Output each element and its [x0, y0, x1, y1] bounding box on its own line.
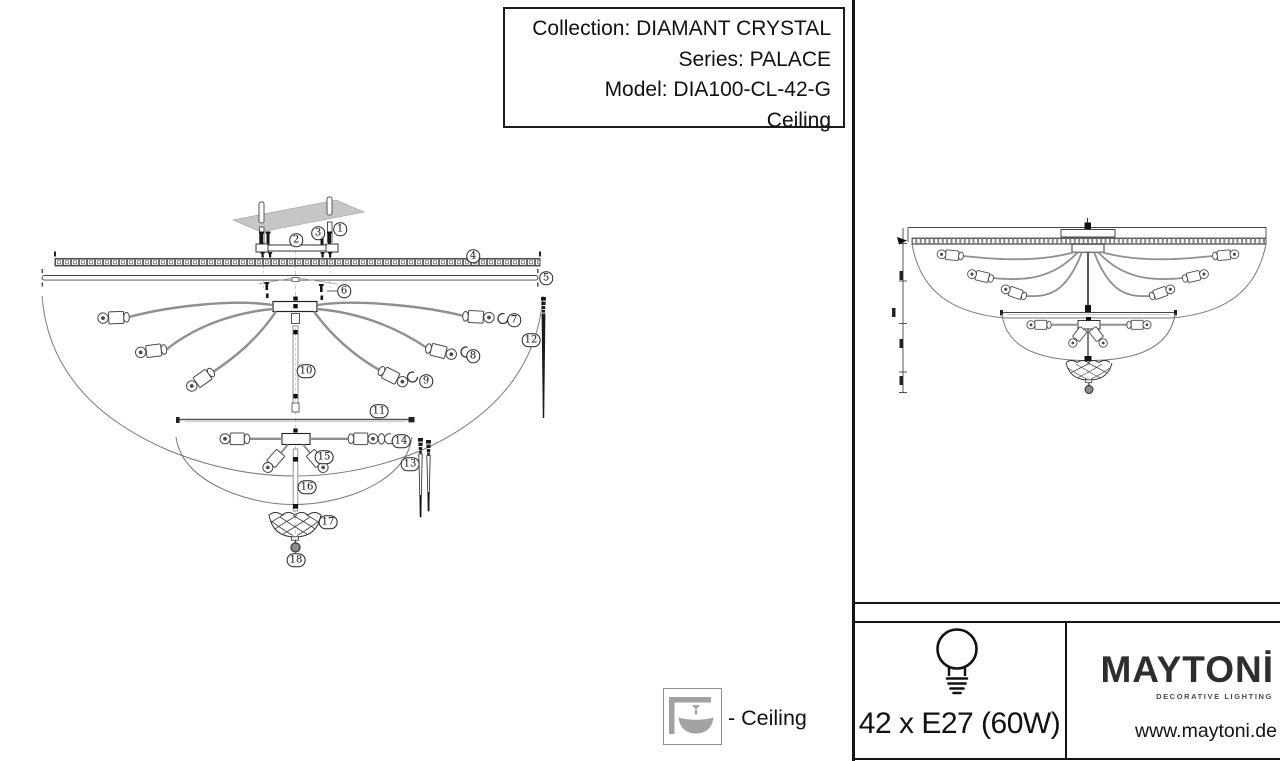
part-badge-3: 3	[311, 226, 325, 240]
ceiling-mount-icon	[663, 688, 722, 745]
part-badge-4: 4	[466, 249, 480, 263]
part-badge-15: 15	[315, 450, 334, 464]
part-badge-5: 5	[539, 271, 553, 285]
ceiling-mount-icon-graphic	[664, 689, 720, 743]
asm-basket	[1066, 361, 1112, 383]
part-badge-12: 12	[522, 333, 541, 347]
part-badge-8: 8	[466, 349, 480, 363]
part-badge-10: 10	[297, 364, 316, 378]
part-badge-7: 7	[507, 313, 521, 327]
assembled-view	[880, 210, 1280, 410]
ceiling-legend-label: - Ceiling	[728, 706, 807, 731]
asm-crystal-band	[912, 238, 1266, 244]
bulb-spec-label: 42 x E27 (60W)	[853, 707, 1066, 741]
asm-mount-bar	[1061, 230, 1115, 238]
brand-tagline: DECORATIVE LIGHTING	[1156, 692, 1273, 701]
part-badge-6: 6	[337, 284, 351, 298]
brand-cell: MAYTONİ DECORATIVE LIGHTING www.maytoni.…	[1066, 621, 1280, 757]
part-badge-13: 13	[401, 457, 420, 471]
part-badge-9: 9	[419, 374, 433, 388]
part-badge-18: 18	[287, 553, 306, 567]
asm-finial	[1085, 386, 1093, 394]
asm-hub	[1072, 244, 1104, 252]
part-badge-17: 17	[319, 515, 338, 529]
spec-sheet-page: Collection: DIAMANT CRYSTAL Series: PALA…	[0, 0, 1280, 761]
part-badge-layer: 123456789101112131415161718	[0, 0, 860, 761]
part-badge-11: 11	[370, 404, 389, 418]
bulb-icon	[927, 625, 987, 700]
footer-top-rule	[852, 602, 1280, 604]
part-badge-14: 14	[392, 434, 411, 448]
part-badge-16: 16	[298, 480, 317, 494]
part-badge-1: 1	[333, 222, 347, 236]
brand-website: www.maytoni.de	[1135, 720, 1277, 743]
dimension-marks	[892, 271, 903, 385]
part-badge-2: 2	[289, 233, 303, 247]
brand-logo: MAYTONİ	[1100, 651, 1274, 688]
